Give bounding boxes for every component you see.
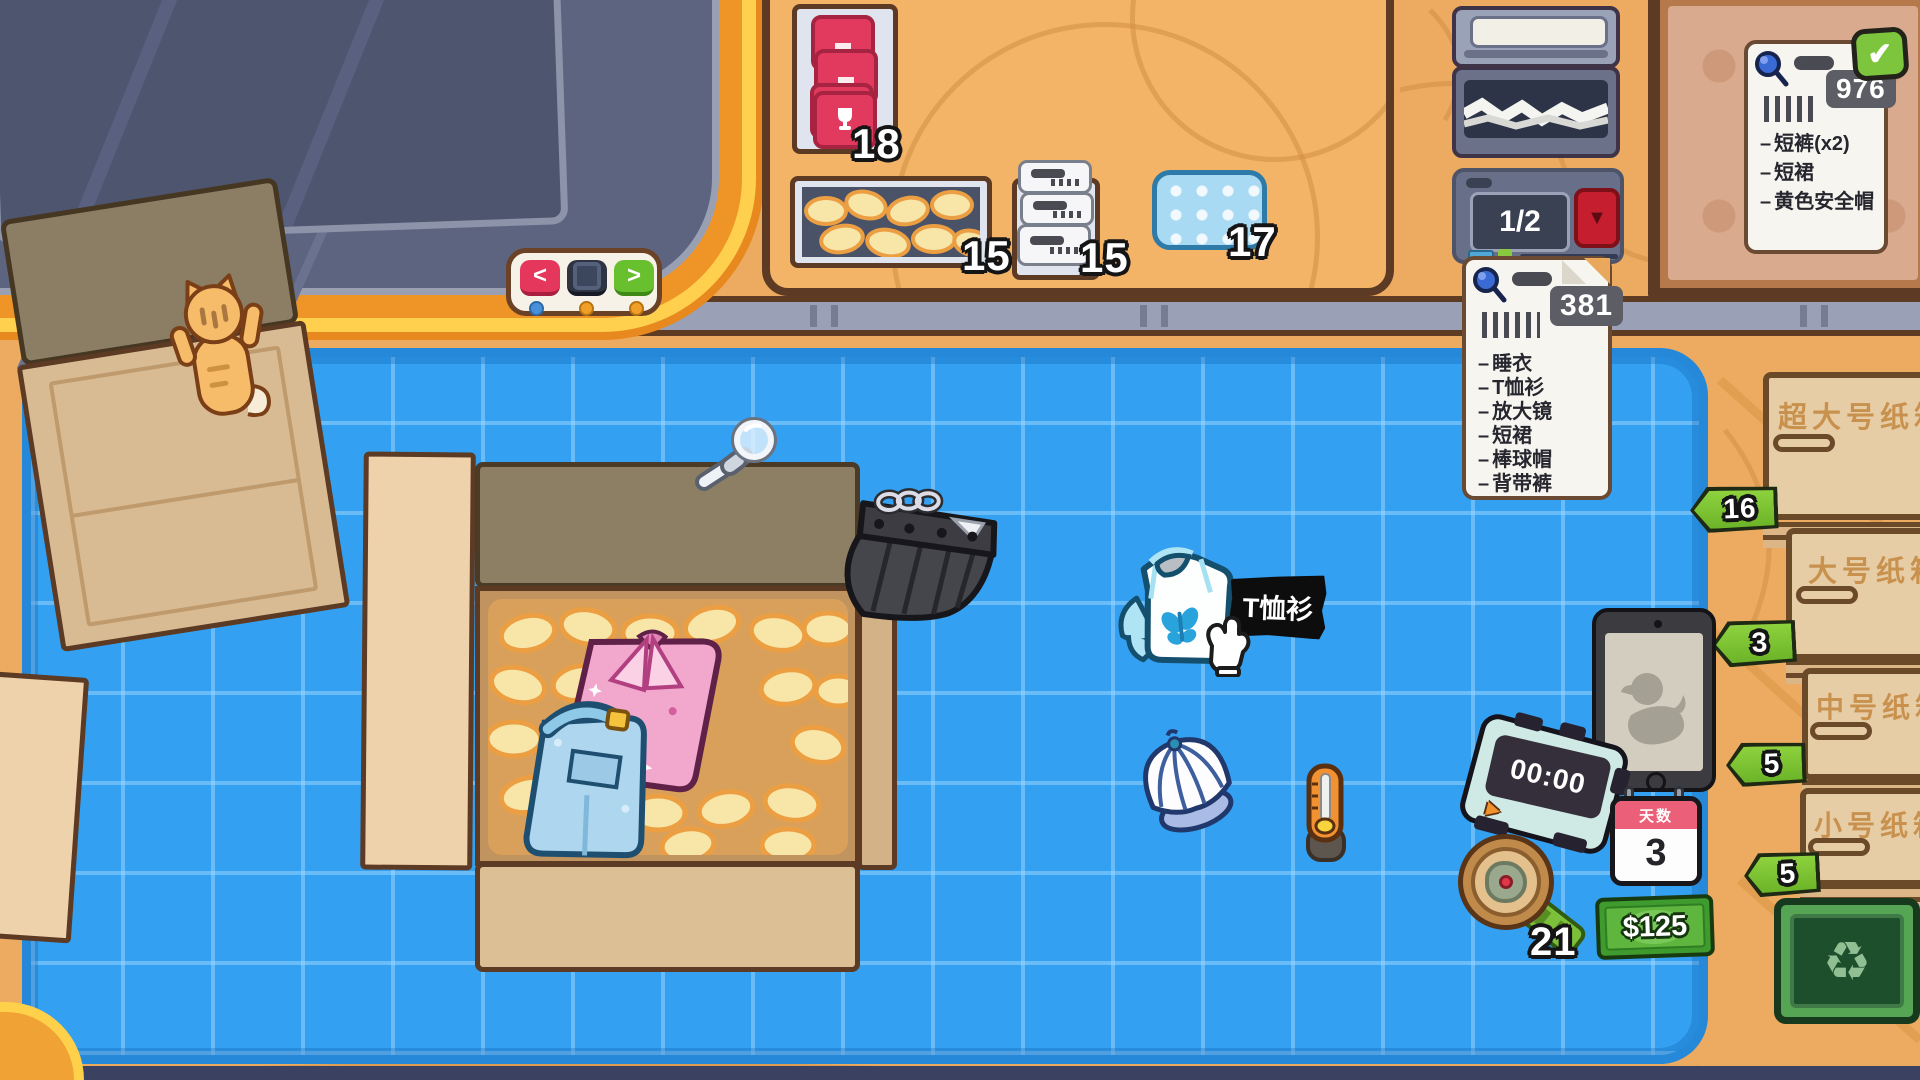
- indicator-dot: [629, 301, 644, 316]
- thermometer-item[interactable]: [1300, 762, 1350, 864]
- gadget-count: 21: [1530, 920, 1577, 965]
- box-stock-xl[interactable]: 超大号纸箱: [1763, 372, 1920, 520]
- box-top-flap: [475, 462, 860, 588]
- bubble-count: 17: [1228, 218, 1277, 266]
- box-feeder-device: 1/2 ▼: [1452, 168, 1624, 264]
- note-bar: [1794, 56, 1834, 70]
- list-item: –放大镜: [1478, 400, 1552, 424]
- box-stock-label: 中号纸箱: [1808, 686, 1920, 726]
- box-handle-slot: [1810, 722, 1872, 740]
- list-item: –T恤衫: [1478, 376, 1552, 400]
- calendar-day: 3: [1615, 829, 1697, 877]
- gadget-head: [1458, 834, 1554, 930]
- barcode-icon: [1482, 312, 1540, 338]
- box-stock-label: 超大号纸箱: [1769, 394, 1920, 436]
- tape-roll: [1464, 80, 1608, 138]
- pushpin-icon: [1752, 48, 1792, 88]
- label-count: 15: [1080, 234, 1129, 282]
- seal-count: 18: [852, 120, 901, 168]
- mode-button[interactable]: [567, 260, 607, 296]
- box-bottom-flap: [475, 862, 860, 972]
- peanut-count: 15: [962, 232, 1011, 280]
- tablet-camera: [1654, 620, 1662, 628]
- box-handle-slot: [1773, 434, 1835, 452]
- recycle-icon: ♻: [1823, 930, 1871, 993]
- box-interior: [475, 586, 860, 866]
- calendar-header: 天数: [1615, 801, 1697, 829]
- cat[interactable]: [147, 264, 289, 431]
- pushpin-icon: [1470, 264, 1510, 304]
- packing-peanuts: [802, 187, 980, 257]
- next-button[interactable]: >: [614, 260, 654, 296]
- inspector-gadget-item[interactable]: 21: [1458, 834, 1588, 974]
- list-item: –短裙: [1478, 424, 1552, 448]
- money-value: $125: [1599, 898, 1711, 956]
- arrow-down-icon: ▼: [1587, 207, 1607, 230]
- barcode-icon: [1764, 96, 1816, 122]
- dispense-box-button[interactable]: ▼: [1574, 188, 1620, 248]
- list-item: –黄色安全帽: [1760, 188, 1874, 217]
- list-item: –睡衣: [1478, 352, 1552, 376]
- order-code: 381: [1550, 286, 1623, 326]
- game-screen: 18 15 15 17 976 –短裤(x2): [0, 0, 1920, 1080]
- prev-button[interactable]: <: [520, 260, 560, 296]
- calendar-item[interactable]: 天数 3: [1610, 788, 1702, 886]
- note-bar: [1512, 272, 1552, 286]
- list-item: –短裙: [1760, 159, 1874, 188]
- desk-edge: [0, 1066, 1920, 1080]
- timer-display: 00:00: [1484, 733, 1613, 820]
- cardboard-sheet[interactable]: [360, 452, 476, 871]
- current-order-note: 381 –睡衣 –T恤衫 –放大镜 –短裙 –棒球帽 –背带裤: [1462, 256, 1612, 500]
- list-item: –棒球帽: [1478, 448, 1552, 472]
- box-stock-label: 大号纸箱: [1792, 548, 1920, 590]
- box-stock-large[interactable]: 大号纸箱: [1786, 528, 1920, 660]
- note-fold-corner: [1584, 258, 1610, 284]
- tape-dispenser-body[interactable]: [1452, 66, 1620, 158]
- list-item: –背带裤: [1478, 472, 1552, 496]
- magnifying-glass-item[interactable]: [688, 412, 788, 497]
- recycle-bin[interactable]: ♻: [1774, 898, 1920, 1024]
- note-fold: [1562, 260, 1586, 284]
- list-item: –短裤(x2): [1760, 130, 1874, 159]
- denim-overalls[interactable]: [490, 672, 683, 874]
- hand-cursor: [1196, 612, 1251, 677]
- square-icon: [573, 262, 601, 290]
- tape-dispenser-top: [1452, 6, 1620, 68]
- money-item[interactable]: $125: [1595, 894, 1715, 960]
- box-feeder-display: 1/2: [1470, 192, 1570, 252]
- indicator-dot: [579, 301, 594, 316]
- box-handle-slot: [1796, 586, 1858, 604]
- conveyor-nav-widget: < >: [506, 248, 662, 316]
- indicator-dot: [529, 301, 544, 316]
- order-complete-check-icon: ✔: [1850, 26, 1909, 82]
- box-stock-medium[interactable]: 中号纸箱: [1802, 668, 1920, 780]
